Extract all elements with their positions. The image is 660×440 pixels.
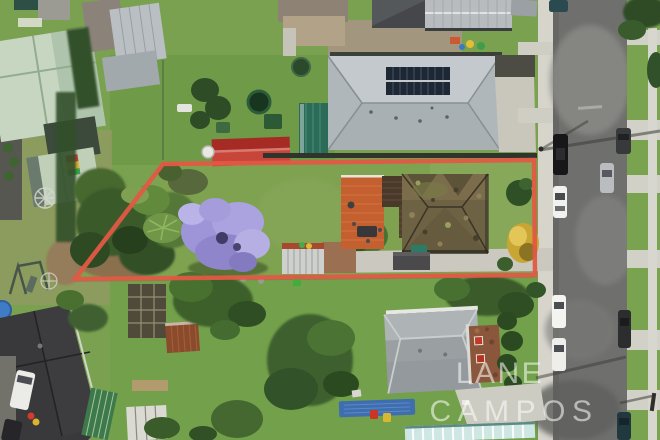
- red-toy: [28, 413, 35, 420]
- white-wall-sliver: [18, 18, 42, 27]
- teal-awning: [411, 245, 427, 253]
- terracotta-courtyard: [341, 175, 384, 249]
- vegetable-garden-beds: [128, 284, 166, 338]
- trampoline: [248, 91, 270, 113]
- red-wheelie-bin: [370, 410, 378, 419]
- green-bush: [497, 257, 513, 271]
- top-gable-roof-silver: [425, 0, 512, 31]
- water-tank: [202, 146, 214, 158]
- white-bench: [177, 104, 192, 112]
- yellow-toy: [33, 419, 40, 426]
- rear-fence-shadow: [330, 52, 502, 56]
- yellow-ball: [306, 243, 312, 249]
- glasshouse: [282, 242, 324, 274]
- parked-car: [553, 186, 567, 218]
- parked-car: [552, 338, 566, 371]
- lawn-light-patch: [257, 179, 353, 251]
- concrete-path: [283, 28, 296, 56]
- rusty-shed: [165, 321, 200, 353]
- green-water-tank: [292, 58, 310, 76]
- rear-yard-shade: [495, 55, 535, 77]
- roof-corner: [511, 0, 538, 17]
- boundary-hedge-strip: [56, 92, 76, 242]
- yellow-wheelie-bin: [383, 413, 391, 422]
- fence-shadow-line: [263, 153, 537, 158]
- tree-over-roof: [56, 290, 84, 310]
- road-worn-patch: [575, 195, 635, 285]
- gray-pad: [38, 0, 70, 20]
- aerial-scene: LANE CAMPOS: [0, 0, 660, 440]
- palm-tree: [143, 213, 183, 243]
- roof-vent: [38, 344, 43, 349]
- aerial-property-photo: LANE CAMPOS: [0, 0, 660, 440]
- road-worn-patch: [550, 25, 630, 135]
- teal-shed: [299, 103, 328, 154]
- parked-car: [617, 412, 631, 440]
- parked-car: [553, 134, 568, 175]
- parked-car: [552, 295, 566, 328]
- parked-car: [618, 310, 631, 348]
- power-pole: [539, 147, 544, 152]
- footpath-right: [648, 28, 657, 440]
- garden-table: [216, 122, 230, 133]
- green-ball: [299, 242, 305, 248]
- white-crate: [352, 389, 362, 397]
- chimney: [474, 337, 482, 345]
- solar-house: [328, 56, 500, 150]
- rotary-clothesline: [41, 273, 57, 289]
- outdoor-table: [357, 226, 377, 237]
- corner-trees: [618, 20, 646, 40]
- parked-car: [616, 128, 631, 154]
- teal-bin-shed: [14, 0, 40, 10]
- top-gable-roof-dark: [372, 0, 426, 28]
- green-bush: [519, 178, 533, 190]
- rotary-clothesline: [35, 188, 55, 208]
- bbq: [348, 202, 355, 209]
- parked-car: [549, 0, 568, 12]
- watermark-line1: LANE: [456, 357, 544, 390]
- watermark-line2: CAMPOS: [429, 395, 598, 428]
- subject-house-roof: [402, 174, 489, 254]
- parked-car: [600, 163, 614, 193]
- outdoor-table-set: [264, 114, 282, 129]
- garage: [393, 252, 430, 270]
- tan-fence: [132, 380, 168, 391]
